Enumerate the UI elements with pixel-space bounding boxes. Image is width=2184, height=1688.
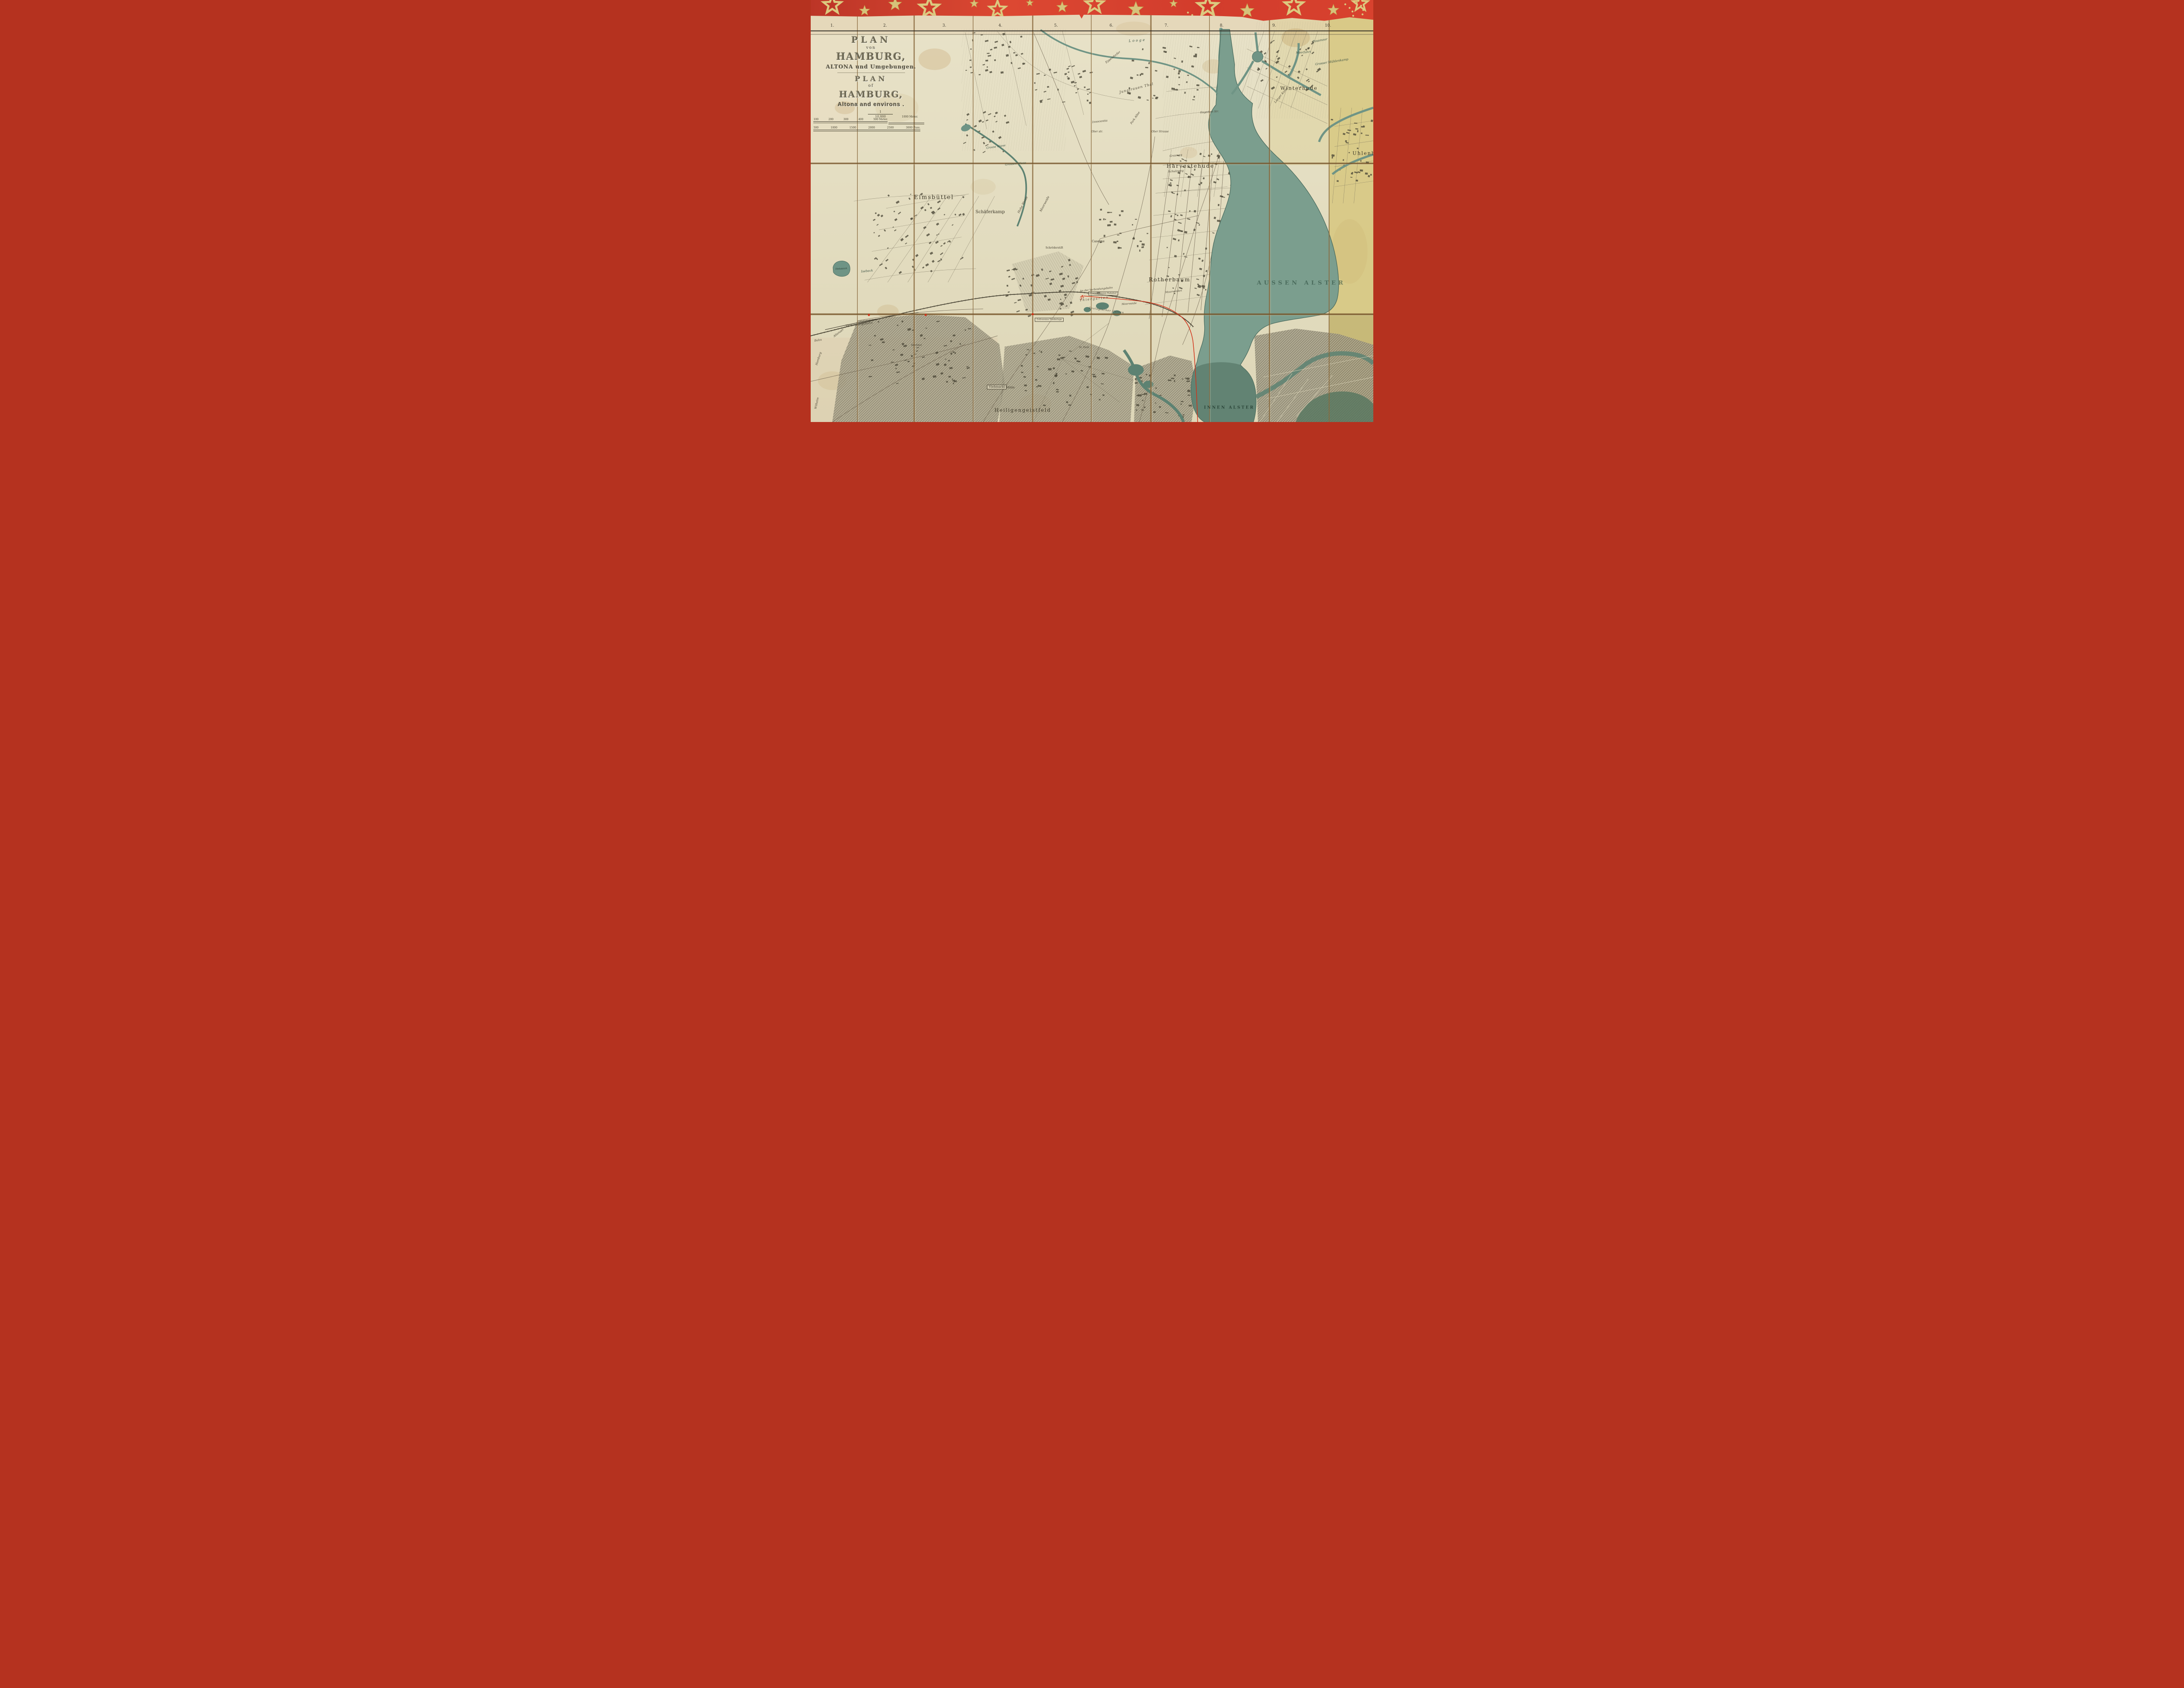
map-label: Hagedorn Str. [1200, 110, 1219, 114]
section-number: 10. [1325, 24, 1331, 28]
photo-of-folded-map: PLAN von HAMBURG, ALTONA und Umgebungen.… [811, 0, 1373, 422]
scale-tick: 500 Meter. [873, 118, 888, 121]
map-label: Ober str. [1091, 131, 1103, 133]
scale-tick: 2000 [868, 126, 875, 129]
map-label: Diebsteich [835, 268, 847, 270]
map-label: Schröderstift [1046, 247, 1063, 249]
map-label: Bahn [814, 338, 822, 342]
scale-tick: 3000 Fuss. [906, 126, 920, 129]
map-label: Caserne [1092, 240, 1105, 243]
scale-tick: 300 [843, 118, 848, 121]
title-de-altona: ALTONA und Umgebungen. [816, 64, 926, 70]
map-label: Zoologischer Garten [1089, 307, 1124, 314]
section-number: 3. [943, 24, 947, 28]
title-de-von: von [816, 46, 926, 50]
map-label: Grosse Wiese [986, 144, 1006, 150]
map-label: Looge [1129, 38, 1146, 43]
map-label: Rotherbaum [1149, 277, 1191, 282]
map-label: Moorfuhrt [1296, 50, 1311, 54]
title-de-hamburg: HAMBURG, [816, 51, 926, 62]
title-de-plan: PLAN [816, 35, 926, 45]
map-label: Hohe Weide [1017, 196, 1028, 214]
map-label: Harvestehude [1167, 163, 1215, 169]
title-en-hamburg: HAMBURG, [816, 89, 926, 100]
section-number: 9. [1272, 24, 1276, 28]
meter-scale-bar: 100200300400500 Meter. [813, 118, 888, 123]
map-label: Schulzweg [1168, 169, 1184, 173]
map-label: Viehmarkt [987, 384, 1007, 389]
scale-tick: 500 [813, 126, 818, 129]
meter-bar-extension [888, 123, 924, 125]
map-label: Grossen Wiese [1005, 161, 1026, 166]
map-label: Grasweg [1169, 154, 1182, 158]
map-label: Innocentia [1092, 119, 1108, 124]
section-number: 2. [883, 24, 887, 28]
scale-tick: 400 [858, 118, 863, 121]
meter-far-label: 1000 Meter. [902, 115, 918, 118]
map-label: Eimsbüttel [914, 195, 954, 201]
section-number: 7. [1165, 24, 1168, 28]
map-label: Ober Strasse [1151, 131, 1169, 133]
fuss-ticks: 50010001500200025003000 Fuss. [813, 126, 920, 129]
title-cartouche: PLAN von HAMBURG, ALTONA und Umgebungen.… [816, 35, 926, 107]
section-number: 1. [830, 24, 834, 28]
map-label: Schäferkamp [975, 210, 1005, 214]
map-label: Thiergarten [1079, 296, 1109, 302]
map-label: Moorweide [1039, 195, 1050, 212]
map-label: Isebeck [861, 269, 873, 273]
map-label: Uhlenhorst [1352, 151, 1373, 156]
scale-tick: 1000 [831, 126, 837, 129]
map-label: AUSSEN ALSTER [1257, 280, 1346, 286]
map-label: Heiligengeistfeld [995, 408, 1051, 412]
map-label: Hamburg [815, 352, 822, 366]
map-label: Altonaer [833, 328, 844, 338]
scale-tick: 1500 [850, 126, 856, 129]
scale-tick: 2500 [887, 126, 894, 129]
title-divider [837, 73, 905, 73]
map-label: Eppendorfer [1105, 51, 1121, 64]
map-label: Moorweiden [1165, 290, 1182, 294]
map-label: St. Pauli [1079, 346, 1089, 349]
scale-tick: 100 [813, 118, 818, 121]
map-label: Mühle [1006, 387, 1015, 389]
scale-fraction-numerator: 1 [879, 110, 881, 114]
map-label: Jungfrauen Thal [1119, 82, 1154, 94]
section-number: 5. [1054, 24, 1058, 28]
map-label: Sternschanzen Bahnhof [1089, 292, 1118, 296]
fuss-bar-line [813, 130, 920, 131]
title-en-altona: Altona and environs . [816, 101, 926, 107]
title-en-of: of [816, 84, 926, 88]
title-en-plan: PLAN [816, 75, 926, 83]
map-label: Park Allee [1130, 111, 1141, 125]
map-label: Kirchhof [911, 344, 922, 347]
map-label: Grosser Mühlenkamp [1315, 58, 1348, 66]
meter-bar-line [813, 121, 888, 123]
section-number: 4. [999, 24, 1002, 28]
map-text-layer: PLAN von HAMBURG, ALTONA und Umgebungen.… [811, 0, 1373, 422]
scale-tick: 200 [829, 118, 833, 121]
map-label: Zollvereins Niederlage [1035, 318, 1064, 322]
map-label: Verbindungsbahn [845, 322, 873, 328]
map-label: Wilhelm [814, 397, 819, 409]
map-label: INNEN ALSTER [1204, 406, 1254, 410]
map-label: Moorweide [1122, 302, 1137, 306]
meter-ticks: 100200300400500 Meter. [813, 118, 888, 121]
section-number: 8. [1220, 24, 1224, 28]
fuss-scale-bar: 50010001500200025003000 Fuss. [813, 126, 920, 131]
scale-fraction: 1 10,000 [868, 110, 893, 118]
section-number: 6. [1109, 24, 1113, 28]
map-label: Possmoor [1312, 38, 1327, 43]
